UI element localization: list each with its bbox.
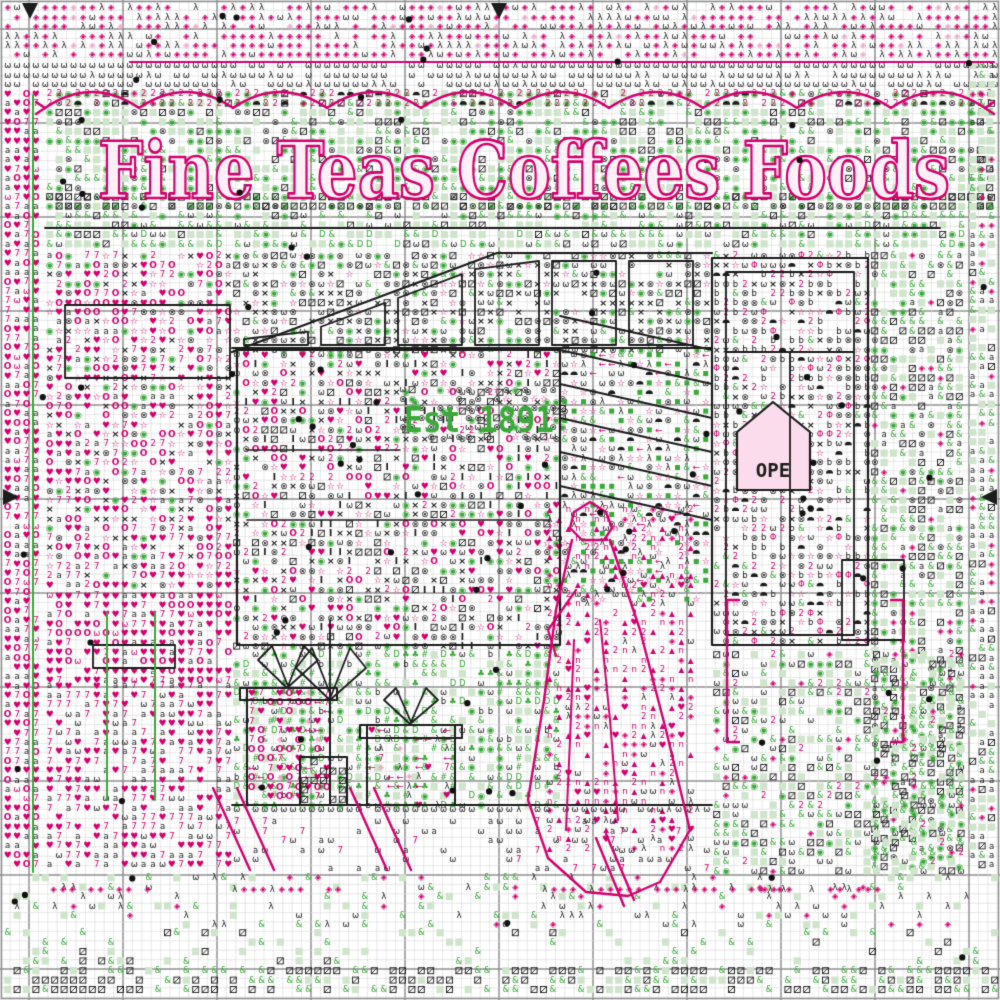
cross-stitch-chart <box>0 0 1000 1000</box>
cross-stitch-pattern-canvas <box>0 0 1000 1000</box>
